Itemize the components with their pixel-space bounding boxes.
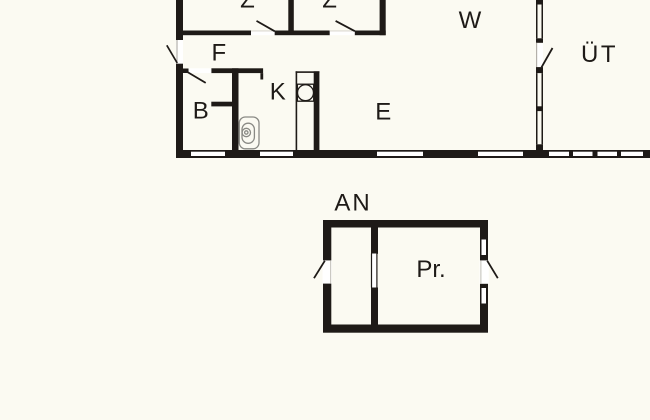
svg-text:K: K — [270, 78, 286, 105]
svg-text:B: B — [193, 97, 209, 124]
svg-text:AN: AN — [334, 189, 371, 216]
svg-text:ÜT: ÜT — [581, 41, 618, 68]
svg-text:W: W — [459, 7, 482, 34]
svg-text:Pr.: Pr. — [416, 256, 445, 283]
svg-text:Z: Z — [322, 0, 337, 14]
svg-text:E: E — [375, 98, 391, 125]
svg-text:Z: Z — [240, 0, 255, 14]
svg-text:F: F — [211, 40, 226, 67]
